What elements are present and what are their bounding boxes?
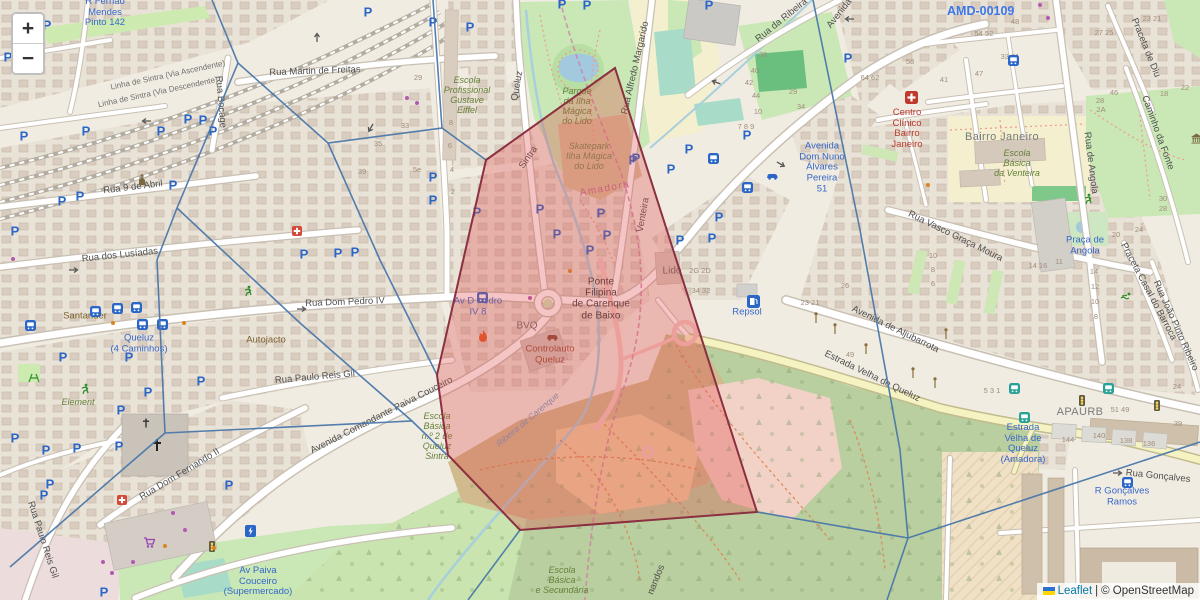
leaflet-flag-icon — [1043, 587, 1055, 595]
roundabout — [538, 293, 558, 313]
zone-ref-label: AMD-00109 — [947, 4, 1014, 18]
zoom-control: + − — [11, 12, 45, 75]
osm-link[interactable]: © OpenStreetMap — [1101, 585, 1194, 597]
attribution-separator: | — [1095, 585, 1098, 597]
leaflet-link[interactable]: Leaflet — [1058, 585, 1093, 597]
zoom-in-button[interactable]: + — [13, 14, 43, 44]
zoom-out-button[interactable]: − — [13, 44, 43, 73]
map-tiles — [0, 0, 1200, 600]
attribution-bar: Leaflet|© OpenStreetMap — [1037, 583, 1200, 600]
map-viewport[interactable]: Rua Martin de FreitasRua 9 de AbrilRua d… — [0, 0, 1200, 600]
